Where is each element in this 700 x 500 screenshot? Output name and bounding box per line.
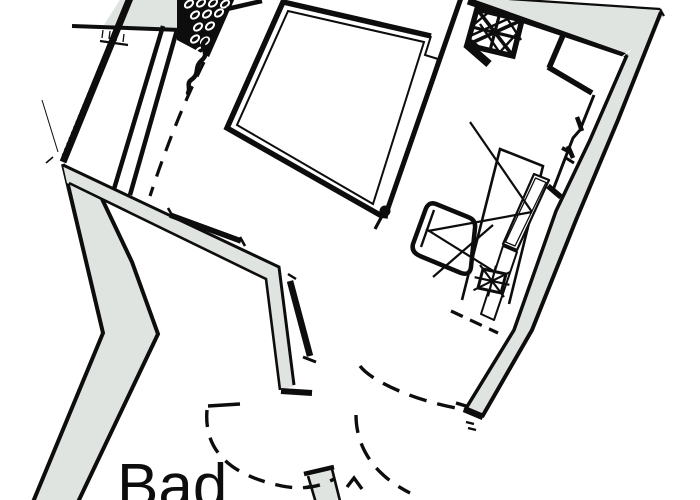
svg-text:Bad: Bad bbox=[117, 452, 227, 500]
